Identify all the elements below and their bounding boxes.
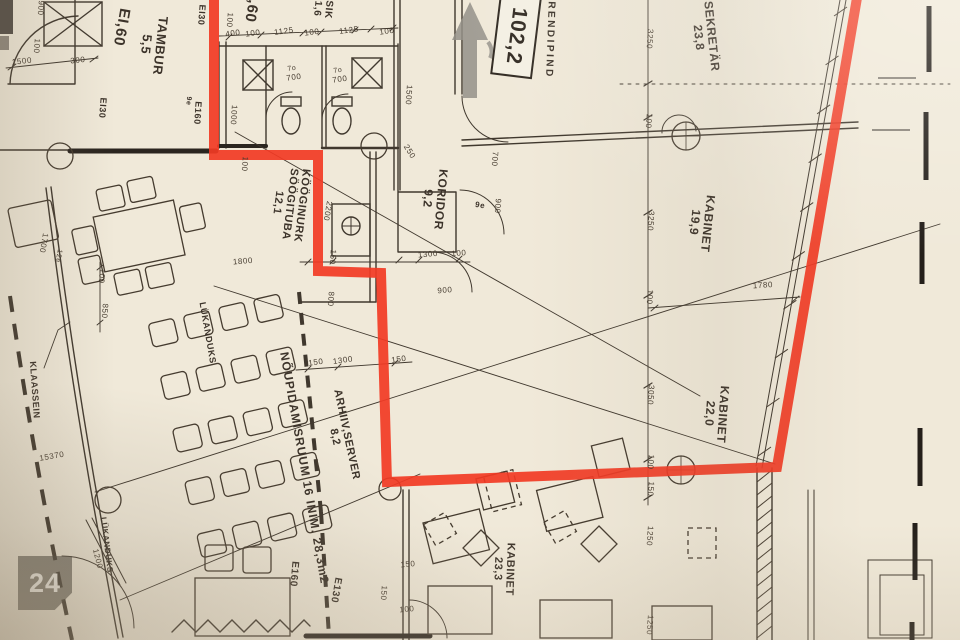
dimension-label: 150 bbox=[391, 355, 407, 366]
dimension-label: 12e bbox=[53, 249, 63, 264]
dimension-label: 1250 bbox=[644, 526, 654, 547]
dimension-label: 100 bbox=[451, 249, 467, 259]
dimension-label: 150 bbox=[645, 481, 655, 497]
area-value: 102,2 bbox=[501, 6, 532, 66]
fire-rating-label: ,60 bbox=[241, 0, 261, 24]
dimension-label: 3250 bbox=[645, 211, 655, 232]
dimension-label: 150 bbox=[327, 249, 337, 265]
dimension-label: 150 bbox=[400, 560, 416, 570]
dimension-label: 1125 bbox=[274, 26, 295, 37]
dimension-label: 100 bbox=[224, 12, 234, 28]
dimension-label: 1500 bbox=[12, 57, 33, 68]
photo-count: 24 bbox=[29, 568, 61, 599]
dimension-label: 100 bbox=[96, 268, 106, 284]
fire-rating-label: E160 bbox=[191, 101, 202, 125]
room-label: KÖÖGINURKSÖÖGITUBA12,1 bbox=[267, 165, 311, 243]
fire-rating-label: EI30 bbox=[195, 4, 206, 26]
room-label: KLAASSEIN bbox=[27, 361, 41, 419]
dimension-label: 900 bbox=[35, 0, 45, 16]
dimension-label: 1250 bbox=[644, 615, 654, 636]
floorplan-photo: TAMBUR5,5SIK1,6KÖÖGINURKSÖÖGITUBA12,1KOR… bbox=[0, 0, 960, 640]
dimension-label: 100 bbox=[399, 605, 415, 615]
dimension-label: 2200 bbox=[321, 200, 333, 221]
dimension-label: 150 bbox=[308, 358, 324, 369]
dimension-label: 400 bbox=[225, 29, 241, 40]
dimension-label: 700 bbox=[489, 151, 499, 167]
room-label: LÜKANDUKS bbox=[197, 301, 217, 364]
room-label: SEKRETÄR23,8 bbox=[688, 0, 721, 73]
room-label: NÕUPIDAMISRUUM 16 INIM. 28,3m2 bbox=[277, 351, 331, 585]
dimension-label: 150 bbox=[378, 585, 388, 601]
dimension-label: 15370 bbox=[39, 451, 65, 464]
dimension-label: 1125 bbox=[339, 25, 360, 36]
room-label: RENDIPIND bbox=[542, 1, 555, 79]
dimension-label: 800 bbox=[325, 291, 335, 307]
dimension-label: 850 bbox=[99, 303, 109, 319]
dimension-label: 100 bbox=[304, 28, 320, 39]
dimension-label: 1500 bbox=[403, 85, 413, 106]
room-label: SIK1,6 bbox=[310, 0, 333, 19]
dimension-label: 3050 bbox=[645, 385, 655, 406]
dimension-label: 100 bbox=[239, 156, 249, 172]
room-label: KABINET23,3 bbox=[490, 542, 516, 596]
dimension-label: 100 bbox=[379, 27, 395, 38]
dimension-label: 100 bbox=[31, 38, 41, 54]
fire-rating-label: E160 bbox=[286, 561, 299, 588]
dimension-label: 1300 bbox=[332, 355, 353, 366]
dimension-label: 100 bbox=[643, 113, 653, 129]
fire-rating-label: 9e bbox=[474, 201, 485, 211]
dimension-label: 1780 bbox=[753, 281, 774, 291]
dimension-label: 1800 bbox=[233, 257, 254, 267]
dimension-label: 100 bbox=[245, 29, 261, 40]
fire-rating-label: EI,60 bbox=[110, 7, 133, 47]
room-label: KABINET22,0 bbox=[701, 384, 731, 443]
dimension-label: 900 bbox=[437, 286, 453, 296]
dimension-label: 700 bbox=[286, 73, 302, 84]
room-label: KABINET19,9 bbox=[685, 193, 717, 253]
fire-rating-label: EI30 bbox=[96, 97, 107, 119]
dimension-label: 1000 bbox=[228, 105, 238, 126]
dimension-label: 1700 bbox=[37, 232, 49, 253]
dimension-label: 100 bbox=[645, 454, 655, 470]
dimension-label: 250 bbox=[401, 143, 416, 160]
room-label: ARHIIV,SERVER8,2 bbox=[319, 388, 361, 483]
room-label: TAMBUR5,5 bbox=[136, 14, 170, 76]
dimension-label: 1300 bbox=[418, 250, 439, 260]
dimension-label: 3250 bbox=[644, 29, 654, 50]
dimension-label: 300 bbox=[70, 56, 86, 66]
dimension-label: 700 bbox=[332, 75, 348, 86]
dimension-label: 900 bbox=[492, 198, 502, 214]
plan-labels-layer: TAMBUR5,5SIK1,6KÖÖGINURKSÖÖGITUBA12,1KOR… bbox=[0, 0, 960, 640]
dimension-label: 100 bbox=[644, 289, 654, 305]
fire-rating-label: 9e bbox=[184, 96, 192, 106]
room-label: KORIDOR9,2 bbox=[418, 168, 449, 231]
